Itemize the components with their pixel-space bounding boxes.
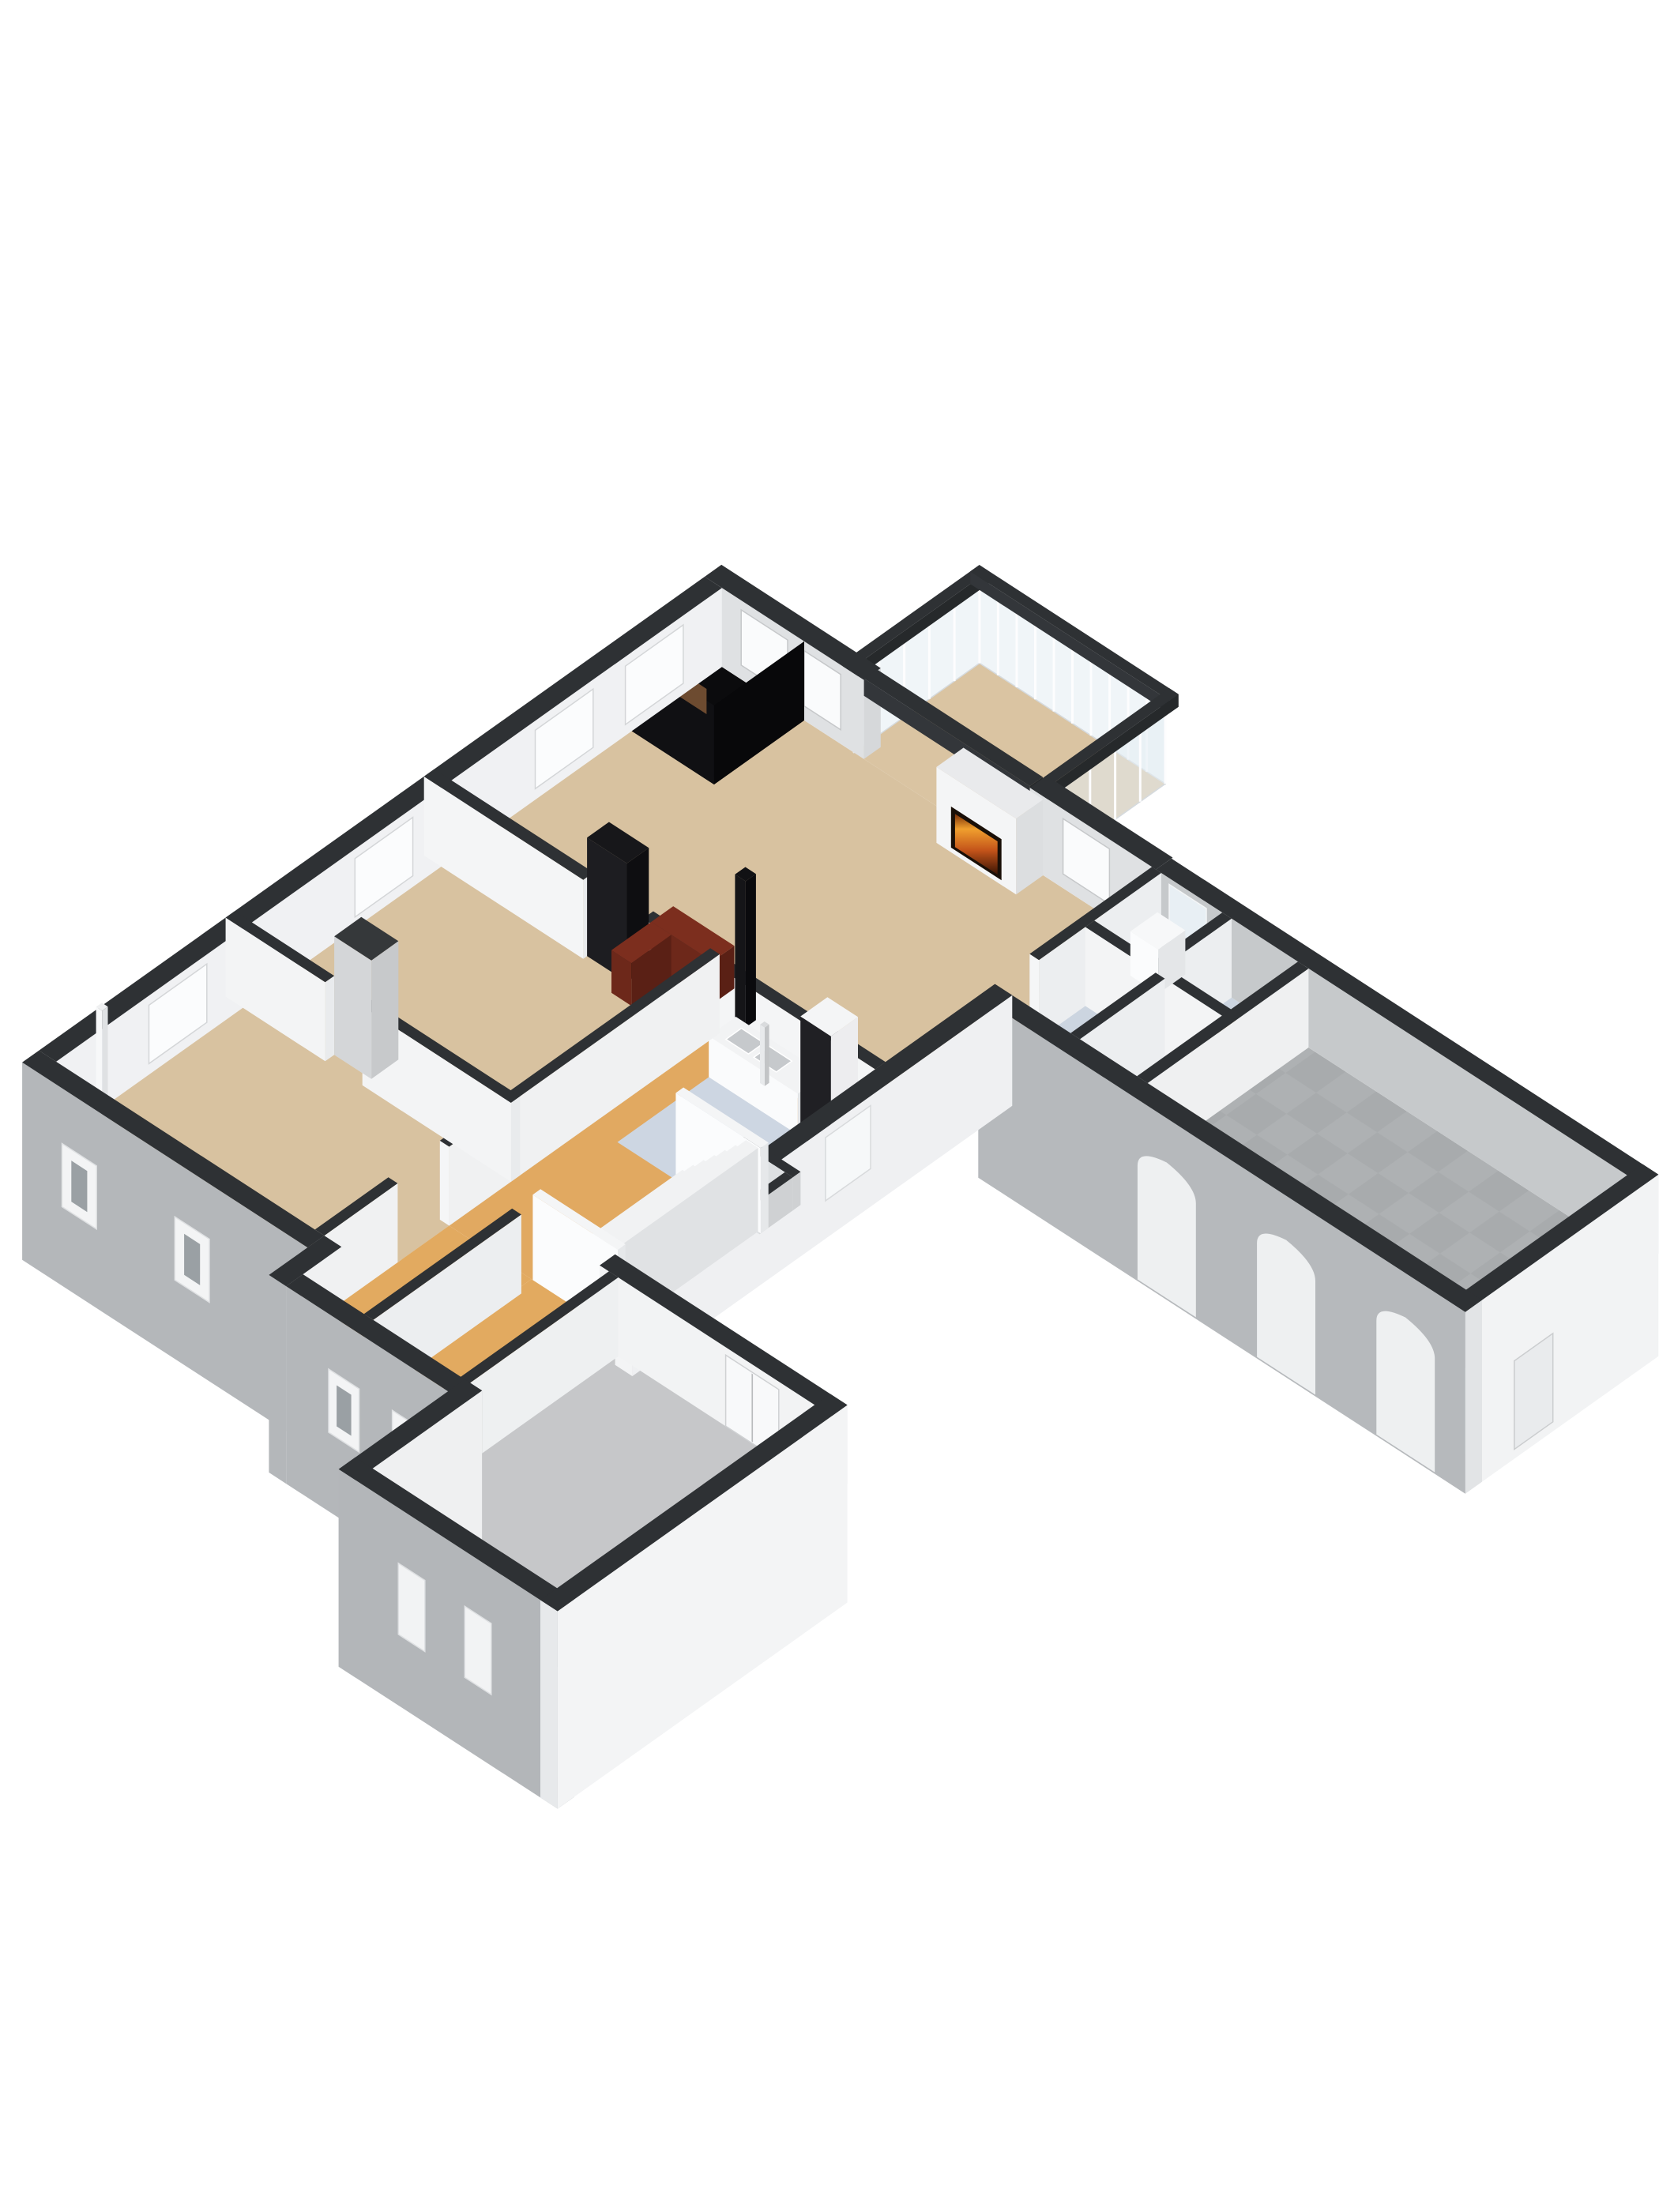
stove-column-face-se (746, 874, 756, 1027)
stove-column-face-sw (735, 875, 746, 1028)
bedroom-chimney-face-sw (334, 936, 371, 1079)
facade-step-1-face-sw (269, 1275, 286, 1484)
gable-wall-se-face-sw (540, 1600, 558, 1808)
bedroom-divider-b-face-se (511, 1097, 521, 1182)
floorplan-3d-view[interactable] (0, 0, 1659, 2212)
wall-hall-west-a-face-sw (440, 1141, 450, 1226)
garage-wall-sw-face-se (1465, 1300, 1482, 1494)
bedroom-chimney-face-se (371, 941, 398, 1078)
storage-door-split (751, 1374, 753, 1443)
floorplan-page (0, 0, 1659, 2212)
cellar-hatch-a-face-se (793, 1172, 801, 1210)
kitchen-faucet-face-se (765, 1025, 769, 1086)
bedroom-divider-a-face-se (325, 976, 335, 1061)
stair-balustrade-back-face-se (761, 1142, 769, 1233)
kitchen-faucet-face-sw (760, 1025, 765, 1086)
